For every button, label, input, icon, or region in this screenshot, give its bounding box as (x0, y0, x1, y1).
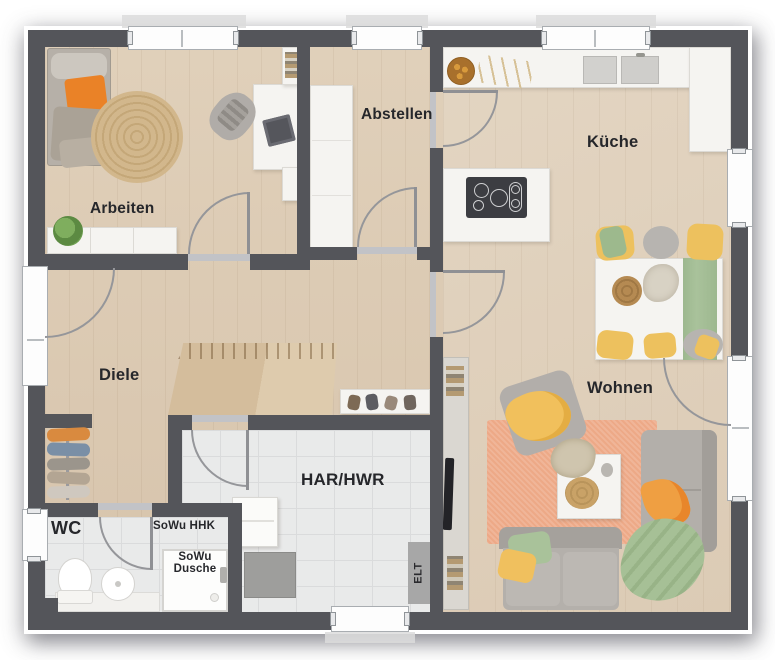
door-leaf-passage (443, 270, 505, 273)
wall-corridor-right (430, 148, 443, 272)
shelf-top-books (285, 52, 297, 78)
window-cap (732, 148, 746, 154)
window-arbeiten (128, 26, 238, 50)
window-kueche-right (727, 149, 753, 227)
hanging-jacket (47, 471, 91, 485)
door-leaf-arbeiten (247, 192, 250, 254)
wall-arbeiten-abstellen (297, 47, 310, 270)
room-label-diele: Diele (99, 366, 139, 385)
room-label-wohnen: Wohnen (587, 379, 653, 398)
room-label-arbeiten: Arbeiten (90, 200, 154, 218)
door-panel-line (732, 427, 749, 429)
window-sill (325, 632, 415, 643)
annotation-sowu-dusche-line2: Dusche (162, 563, 228, 575)
storage-cabinet-shelf-line (312, 195, 351, 196)
room-label-kueche: Küche (587, 133, 638, 152)
wall-har-top (248, 415, 430, 430)
kitchen-sink-basin (621, 56, 659, 84)
window-cap (330, 612, 336, 626)
window-kueche-top (542, 26, 650, 50)
room-label-wc: WC (51, 518, 81, 539)
storage-cabinet (310, 85, 353, 248)
door-lintel (430, 272, 436, 337)
window-cap (404, 612, 410, 626)
wall-wc-top (45, 503, 98, 517)
jute-rug (91, 91, 183, 183)
dining-chair-gray (643, 226, 679, 259)
room-label-har-hwr: HAR/HWR (301, 470, 385, 490)
window-cap (732, 355, 746, 361)
window-mullion (181, 30, 183, 47)
door-lintel (188, 254, 250, 261)
cooktop-burner (511, 199, 520, 208)
kitchen-counter-right (689, 47, 731, 152)
window-cap (732, 222, 746, 228)
wall-har-left (168, 430, 182, 505)
sideboard-books (447, 556, 463, 590)
wall-exterior-right (731, 30, 748, 630)
hanging-jacket (47, 485, 90, 498)
fruit-bowl (447, 57, 475, 85)
utility-unit (244, 552, 296, 598)
decor-bowl (612, 276, 642, 306)
storage-cabinet-shelf-line (312, 140, 351, 141)
cooktop-burner (490, 189, 508, 207)
sideboard-books (446, 366, 464, 396)
hanging-jacket (47, 427, 91, 442)
window-har (331, 606, 409, 632)
shower-drain (210, 593, 219, 602)
wall-har-top (168, 415, 192, 430)
window-cap (27, 556, 41, 562)
window-mullion (594, 30, 596, 47)
plant (53, 216, 83, 246)
room-label-abstellen: Abstellen (361, 106, 433, 124)
window-cap (27, 508, 41, 514)
dining-chair-yellow (643, 332, 677, 360)
sideboard-divider (133, 228, 134, 253)
door-leaf-har (246, 430, 249, 490)
vase (601, 463, 613, 477)
elt-panel: ELT (408, 542, 430, 604)
staircase-treads (178, 343, 337, 359)
shoes (403, 395, 416, 411)
rope-tray (565, 477, 599, 509)
toilet-tank (57, 590, 93, 604)
window-cap (541, 31, 547, 45)
hanging-jacket (47, 457, 90, 470)
sofa-seat-cushion (563, 552, 617, 606)
elt-label: ELT (413, 562, 425, 583)
door-panel-line (27, 339, 44, 341)
wall-wc-top (152, 503, 242, 517)
wall-wc-har (228, 517, 242, 612)
sink-drain (115, 581, 121, 587)
annotation-sowu-hhk: SoWu HHK (153, 520, 215, 532)
dining-chair-yellow (596, 329, 635, 361)
wall-kueche-left (430, 47, 443, 92)
coat-rack-shelf (45, 414, 92, 428)
door-lintel (357, 247, 417, 254)
kitchen-faucet (636, 53, 645, 57)
dining-chair-yellow (686, 223, 724, 261)
shoes (365, 393, 379, 411)
floor-plan: ELT (0, 0, 775, 660)
wall-abstellen-bottom (310, 247, 357, 260)
cooktop-burner (473, 200, 484, 211)
cooktop-burner (511, 185, 520, 194)
window-cap (732, 496, 746, 502)
annotation-sowu-dusche-line1: SoWu (162, 551, 228, 563)
window-cap (645, 31, 651, 45)
sideboard-divider (90, 228, 91, 253)
sofa-right-backrest (702, 430, 717, 552)
hanging-jacket (47, 442, 90, 456)
window-cap (127, 31, 133, 45)
door-lintel (192, 415, 248, 422)
annotation-sowu-dusche: SoWu Dusche (162, 551, 228, 575)
window-cap (417, 31, 423, 45)
window-cap (351, 31, 357, 45)
door-leaf-kueche (443, 90, 498, 93)
kitchen-sink-basin (583, 56, 617, 84)
door-leaf-abstellen (414, 187, 417, 247)
window-wc (22, 509, 48, 561)
door-lintel (98, 503, 152, 510)
window-abstellen (352, 26, 422, 50)
window-cap (233, 31, 239, 45)
cooktop-burner (474, 183, 489, 198)
wall-diele-wohnen (430, 337, 443, 612)
